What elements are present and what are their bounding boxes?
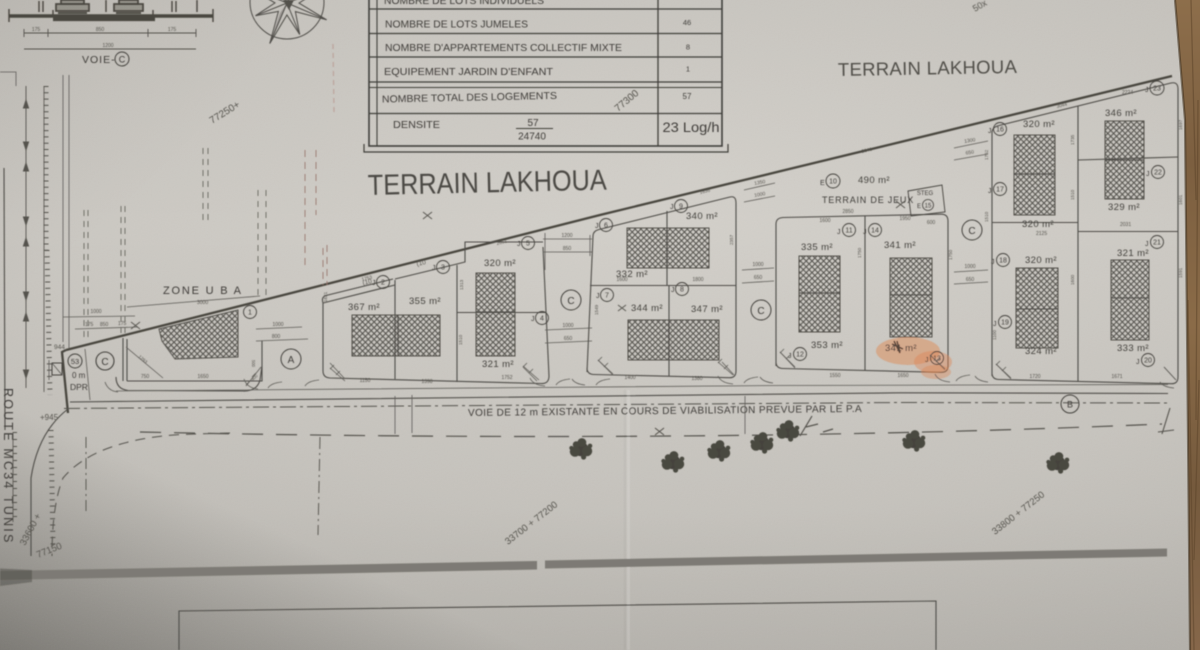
svg-text:1600: 1600	[819, 218, 830, 224]
svg-text:1950: 1950	[899, 216, 910, 222]
svg-text:3: 3	[441, 265, 445, 272]
svg-text:1621: 1621	[323, 291, 328, 302]
svg-text:J: J	[863, 229, 867, 236]
svg-text:9: 9	[679, 204, 683, 211]
svg-text:J: J	[432, 265, 436, 272]
svg-text:J: J	[988, 188, 992, 195]
svg-text:340 m²: 340 m²	[686, 211, 718, 222]
svg-text:320 m²: 320 m²	[1022, 219, 1054, 230]
svg-text:850: 850	[100, 322, 109, 328]
svg-text:1650: 1650	[197, 374, 208, 380]
svg-text:1000: 1000	[272, 322, 283, 328]
svg-text:TERRAIN DE JEUX: TERRAIN DE JEUX	[822, 195, 914, 205]
svg-text:+945: +945	[40, 413, 59, 422]
svg-text:850: 850	[96, 27, 105, 33]
svg-text:321 m²: 321 m²	[1117, 248, 1149, 259]
svg-text:1601: 1601	[1178, 194, 1183, 205]
svg-text:E: E	[917, 204, 921, 210]
svg-text:1398: 1398	[421, 379, 432, 385]
svg-text:8: 8	[680, 287, 684, 294]
svg-text:DPR: DPR	[70, 382, 88, 392]
svg-text:1200: 1200	[102, 43, 113, 49]
svg-text:46: 46	[683, 18, 691, 27]
svg-text:335 m²: 335 m²	[801, 242, 833, 253]
svg-text:NOMBRE D'APPARTEMENTS COLLECTI: NOMBRE D'APPARTEMENTS COLLECTIF MIXTE	[385, 43, 622, 54]
svg-text:175: 175	[168, 27, 177, 33]
svg-text:347 m²: 347 m²	[691, 304, 723, 315]
svg-text:1750: 1750	[857, 247, 862, 258]
svg-text:329 m²: 329 m²	[1108, 202, 1140, 213]
svg-text:1800: 1800	[692, 277, 703, 283]
svg-text:355 m²: 355 m²	[409, 296, 441, 307]
svg-text:2031: 2031	[1120, 222, 1131, 228]
svg-text:A: A	[288, 355, 295, 366]
svg-text:1000: 1000	[90, 309, 101, 315]
svg-text:12: 12	[796, 352, 804, 359]
svg-text:16: 16	[996, 127, 1004, 134]
svg-text:1510: 1510	[1070, 189, 1075, 200]
svg-text:J: J	[1136, 359, 1140, 366]
svg-text:1752: 1752	[501, 375, 512, 381]
svg-text:850: 850	[563, 246, 572, 252]
svg-text:341 m²: 341 m²	[884, 240, 916, 251]
svg-text:11: 11	[845, 228, 852, 235]
svg-text:24740: 24740	[518, 132, 546, 143]
svg-text:C: C	[101, 357, 108, 368]
svg-text:6: 6	[604, 223, 608, 230]
svg-text:53: 53	[71, 357, 79, 366]
svg-text:650: 650	[754, 275, 763, 281]
svg-text:4: 4	[540, 316, 544, 323]
svg-text:J: J	[925, 357, 929, 364]
svg-text:STEG: STEG	[917, 191, 934, 197]
svg-text:1100: 1100	[992, 330, 997, 340]
svg-text:J: J	[837, 229, 841, 236]
svg-text:2: 2	[381, 280, 385, 287]
svg-text:367 m²: 367 m²	[348, 302, 380, 313]
svg-text:320 m²: 320 m²	[484, 258, 516, 269]
svg-text:1750: 1750	[948, 249, 953, 260]
svg-text:332 m²: 332 m²	[616, 269, 648, 280]
svg-text:J: J	[670, 204, 674, 211]
svg-text:1313: 1313	[459, 279, 464, 290]
svg-text:J: J	[1145, 87, 1149, 94]
svg-text:J: J	[671, 287, 675, 294]
svg-text:1752: 1752	[984, 149, 989, 160]
svg-text:353 m²: 353 m²	[811, 340, 843, 351]
svg-text:J: J	[596, 293, 600, 300]
svg-text:1720: 1720	[1029, 374, 1040, 380]
svg-text:J: J	[531, 316, 535, 323]
svg-text:5: 5	[526, 241, 530, 248]
svg-text:2224: 2224	[1122, 90, 1133, 96]
svg-text:1650: 1650	[897, 373, 908, 379]
svg-text:1510: 1510	[984, 211, 989, 222]
svg-text:21: 21	[1153, 240, 1161, 247]
svg-text:J: J	[1146, 171, 1150, 178]
svg-text:650: 650	[966, 277, 975, 283]
svg-text:J: J	[1145, 241, 1149, 248]
svg-text:600: 600	[927, 220, 936, 226]
svg-text:1000: 1000	[964, 264, 975, 270]
svg-text:175: 175	[85, 322, 94, 328]
svg-text:490 m²: 490 m²	[858, 175, 890, 186]
svg-text:750: 750	[141, 374, 150, 380]
svg-text:1000: 1000	[562, 323, 573, 329]
svg-text:20: 20	[1144, 358, 1152, 365]
svg-text:320 m²: 320 m²	[1023, 119, 1055, 130]
svg-text:500: 500	[251, 360, 256, 368]
svg-text:22: 22	[1154, 170, 1162, 177]
svg-text:1: 1	[686, 65, 690, 74]
svg-text:14: 14	[871, 228, 879, 235]
svg-text:TERRAIN LAKHOUA: TERRAIN LAKHOUA	[367, 165, 607, 202]
svg-text:346 m²: 346 m²	[1105, 108, 1137, 119]
svg-text:ZONE U B A: ZONE U B A	[163, 285, 243, 297]
svg-text:10: 10	[829, 179, 837, 186]
svg-text:333 m²: 333 m²	[1117, 343, 1149, 354]
svg-text:1000: 1000	[752, 262, 763, 268]
svg-text:344 m²: 344 m²	[631, 303, 663, 314]
svg-text:C: C	[968, 226, 975, 237]
svg-text:1697: 1697	[1178, 119, 1183, 130]
svg-text:1735: 1735	[1070, 134, 1075, 145]
svg-text:NOMBRE DE LOTS JUMELES: NOMBRE DE LOTS JUMELES	[385, 20, 528, 31]
svg-text:1200: 1200	[561, 233, 572, 239]
svg-text:321 m²: 321 m²	[482, 359, 514, 370]
svg-text:1400: 1400	[624, 375, 635, 381]
svg-text:J: J	[991, 259, 995, 266]
svg-text:E: E	[820, 180, 825, 187]
svg-text:175: 175	[32, 27, 41, 33]
svg-text:J: J	[372, 280, 376, 287]
svg-text:17: 17	[996, 187, 1004, 194]
svg-text:23: 23	[1153, 86, 1161, 93]
svg-text:VOIE-: VOIE-	[82, 54, 116, 66]
svg-text:1380: 1380	[691, 376, 702, 382]
svg-text:2125: 2125	[1036, 231, 1047, 237]
svg-text:1600: 1600	[1070, 274, 1075, 285]
svg-text:650: 650	[564, 336, 573, 342]
svg-text:0 m: 0 m	[72, 371, 86, 380]
svg-text:320 m²: 320 m²	[1025, 255, 1057, 266]
svg-text:18: 18	[999, 258, 1007, 265]
svg-text:J: J	[993, 321, 997, 328]
svg-text:19: 19	[1001, 320, 1009, 327]
svg-text:2357: 2357	[729, 234, 734, 245]
svg-text:8: 8	[686, 43, 690, 52]
svg-text:B: B	[1067, 400, 1073, 410]
svg-text:1150: 1150	[360, 378, 371, 384]
svg-text:57: 57	[683, 92, 692, 101]
svg-text:EQUIPEMENT JARDIN D'ENFANT: EQUIPEMENT JARDIN D'ENFANT	[384, 67, 553, 78]
svg-text:1591: 1591	[1178, 267, 1183, 278]
svg-text:15: 15	[925, 204, 932, 210]
svg-text:DENSITE: DENSITE	[393, 120, 440, 131]
svg-text:J: J	[988, 128, 992, 135]
svg-text:1671: 1671	[1111, 374, 1122, 380]
svg-text:1510: 1510	[458, 334, 463, 345]
svg-text:C: C	[567, 296, 574, 307]
svg-text:TERRAIN LAKHOUA: TERRAIN LAKHOUA	[838, 56, 1018, 80]
svg-text:324 m²: 324 m²	[1025, 346, 1057, 357]
svg-text:7: 7	[605, 293, 609, 300]
svg-text:57: 57	[527, 118, 539, 129]
svg-text:944: 944	[54, 344, 65, 351]
svg-text:NOMBRE DE LOTS INDIVIDUELS: NOMBRE DE LOTS INDIVIDUELS	[384, 0, 544, 7]
svg-text:J: J	[517, 241, 521, 248]
svg-text:1550: 1550	[829, 373, 840, 379]
svg-text:800: 800	[272, 334, 281, 340]
svg-text:1549: 1549	[594, 304, 599, 315]
svg-text:J: J	[595, 223, 599, 230]
svg-text:1: 1	[248, 310, 252, 317]
svg-text:C: C	[757, 306, 764, 317]
svg-text:23 Log/h: 23 Log/h	[663, 120, 720, 135]
svg-text:2850: 2850	[842, 209, 853, 215]
svg-text:C: C	[119, 55, 126, 65]
